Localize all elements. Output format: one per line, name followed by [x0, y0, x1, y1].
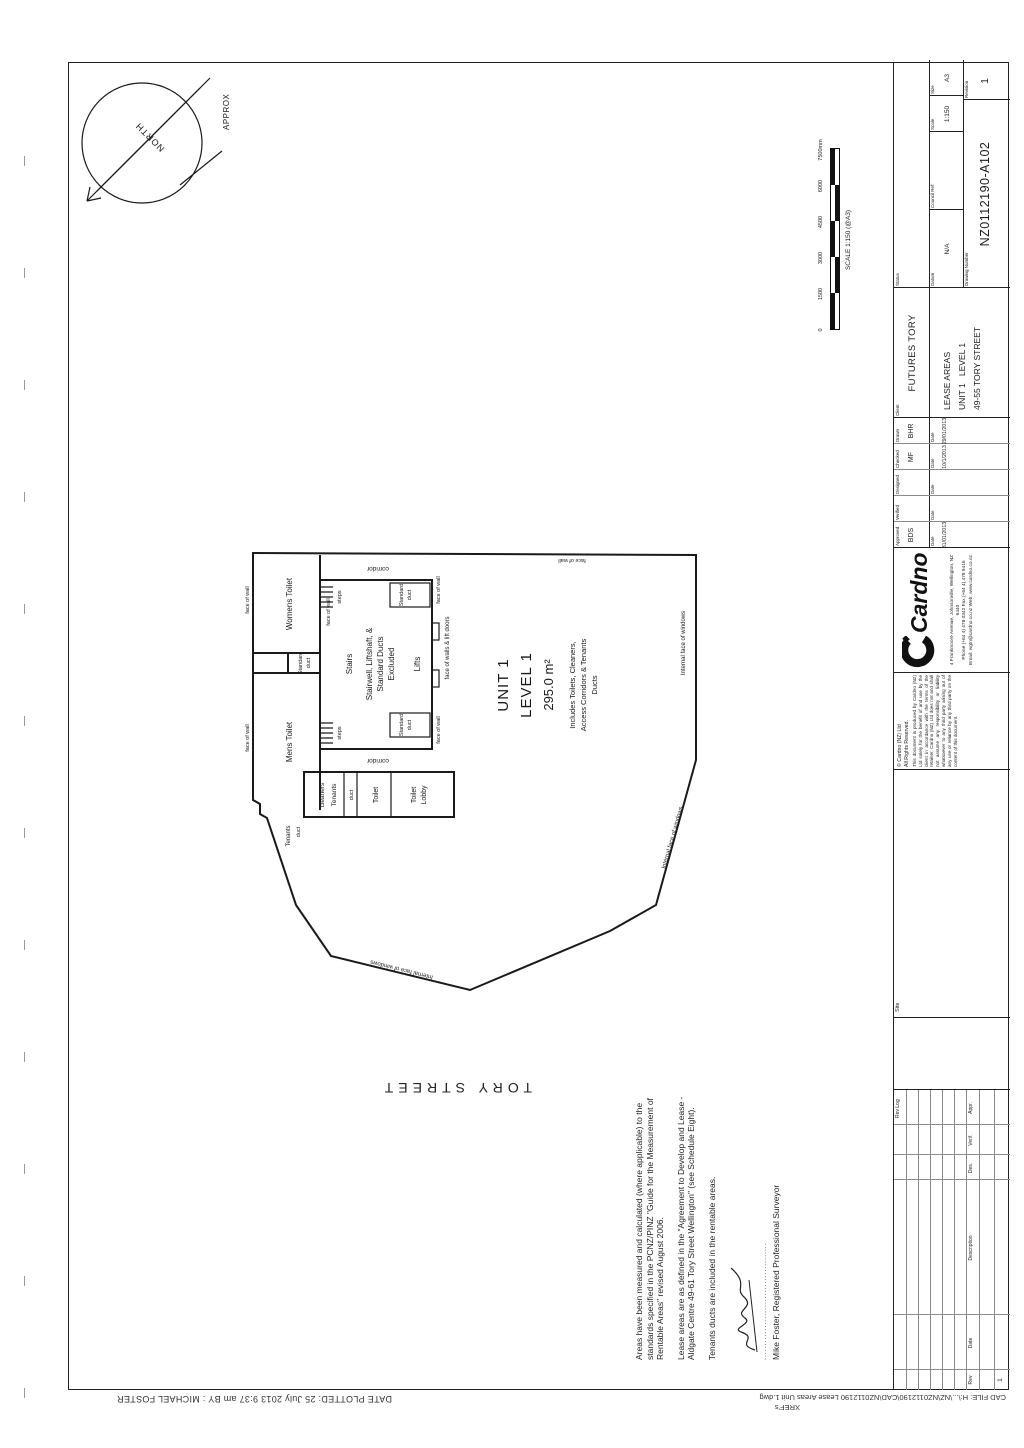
- job-title-line: UNIT 1 LEVEL 1: [957, 343, 967, 410]
- client-value: FUTURES TORY: [907, 288, 918, 418]
- revision-value: 1: [980, 62, 991, 100]
- cardno-address: 4 Frankmoore Avenue, Johnsonville, Welli…: [950, 549, 975, 671]
- title-block: Rev Date Description Des. Verif. Appr. 1…: [893, 62, 1009, 1390]
- client-label: Client: [896, 404, 901, 416]
- face-of-walls-lift-doors-label: face of walls & lift doors: [445, 616, 451, 679]
- svg-text:Lobby: Lobby: [421, 785, 428, 805]
- standard-duct-label: Standard: [298, 652, 304, 674]
- scale-tick: 0: [818, 328, 824, 331]
- lift-door-notch: [432, 623, 439, 640]
- svg-text:duct: duct: [407, 719, 413, 730]
- north-approx-label: APPROX: [222, 94, 231, 130]
- revision-label: Revision: [965, 81, 970, 98]
- date-plotted-stamp: DATE PLOTTED: 25 July 2013 9:37 am BY : …: [117, 1394, 392, 1404]
- stairwell-note: Stairwell, Liftshaft, &: [365, 627, 374, 700]
- xrefs-stamp: XREF's: [775, 1403, 800, 1412]
- north-circle: [82, 83, 202, 203]
- scale-bar-graphic: [830, 148, 840, 330]
- svg-text:Standard Ducts: Standard Ducts: [376, 636, 385, 691]
- personnel-role: Drawn: [896, 429, 901, 442]
- personnel-role: Checked: [896, 450, 901, 468]
- svg-text:duct: duct: [296, 826, 302, 837]
- scale-label: Scale: [931, 119, 936, 130]
- internal-face-of-windows-label: Internal face of windows: [681, 611, 687, 675]
- size-label: Size: [931, 85, 936, 94]
- scale-tick: 3000: [818, 252, 824, 264]
- unit-level: LEVEL 1: [518, 652, 535, 718]
- site-label: Site: [896, 1003, 902, 1012]
- personnel-name: BHR: [908, 418, 915, 444]
- personnel-role: Approved: [896, 527, 901, 546]
- personnel-date: 31/01/2013: [942, 521, 948, 549]
- personnel-date: 10/1/2013: [942, 443, 948, 471]
- job-title-line: LEASE AREAS: [942, 352, 952, 410]
- svg-text:duct: duct: [306, 657, 312, 668]
- rev-entry-1: 1: [998, 1378, 1005, 1382]
- unit-title: UNIT 1: [495, 658, 512, 711]
- svg-text:Internal face of windows: Internal face of windows: [370, 958, 434, 979]
- rev-table-header-appr: Appr.: [969, 1102, 974, 1114]
- toilet-label: Toilet: [373, 787, 380, 803]
- svg-text:Excluded: Excluded: [387, 648, 396, 681]
- rev-table-header-des: Des.: [969, 1163, 974, 1173]
- svg-text:Ducts: Ducts: [590, 675, 599, 694]
- surveyor-signature: [727, 1264, 761, 1354]
- fold-marks: [24, 58, 25, 1398]
- personnel-role: Designed: [896, 475, 901, 494]
- corridor-label-right: corridor: [366, 565, 389, 572]
- notes-block: Areas have been measured and calculated …: [634, 1088, 782, 1360]
- personnel-name: MF: [908, 444, 915, 470]
- svg-text:Standard: Standard: [399, 584, 405, 606]
- scale-bar: 0 1500 3000 4500 6000 7500mm SCALE 1:150…: [818, 143, 860, 333]
- steps-label: steps: [337, 726, 343, 739]
- corridor-label-left: corridor: [366, 757, 389, 764]
- surveyor-name: Mike Foster, Registered Professional Sur…: [771, 1088, 782, 1360]
- copyright-body: This document is produced by Cardno (NZ)…: [912, 675, 958, 767]
- svg-text:Internal face of windows: Internal face of windows: [661, 806, 685, 870]
- svg-text:Standard: Standard: [399, 714, 405, 736]
- cardno-logo-icon: [902, 636, 938, 668]
- north-arrow: NORTH: [62, 63, 247, 213]
- note-tenants-ducts: Tenants ducts are included in the rentab…: [707, 1088, 718, 1360]
- svg-text:face of wall: face of wall: [558, 557, 586, 563]
- datum-label: Datum: [931, 273, 936, 286]
- signature-dots: ........................................: [761, 1088, 769, 1360]
- svg-text:duct: duct: [407, 589, 413, 600]
- unit-includes: Includes Toilets, Cleaners,: [568, 641, 577, 728]
- drawing-number-value: NZ0112190-A102: [978, 100, 992, 288]
- svg-text:face of wall: face of wall: [245, 586, 251, 614]
- unit-area: 295.0 m²: [541, 659, 556, 711]
- rev-table-header-verif: Verif.: [969, 1134, 974, 1145]
- council-ref-label: Council Ref:: [931, 183, 936, 208]
- street-label: TORY STREET: [380, 1080, 532, 1096]
- cardno-wordmark: Cardno: [906, 553, 933, 634]
- datum-value: N/A: [944, 210, 951, 288]
- size-value: A3: [944, 60, 951, 96]
- svg-text:face of wall: face of wall: [436, 576, 442, 604]
- personnel-role: Verified: [896, 505, 901, 520]
- rev-table-header-date: Date: [969, 1338, 974, 1349]
- stairs-label: Stairs: [345, 654, 354, 674]
- drawing-sheet: DATE PLOTTED: 25 July 2013 9:37 am BY : …: [0, 0, 1024, 1448]
- floor-plan: Mens Toilet Womens Toilet Standard duct …: [240, 538, 712, 1020]
- scale-value: 1:150: [944, 96, 951, 132]
- scale-tick: 6000: [818, 180, 824, 192]
- mens-toilet-label: Mens Toilet: [285, 721, 294, 762]
- svg-text:Tenants: Tenants: [331, 783, 338, 807]
- scale-tick: 7500mm: [818, 139, 824, 160]
- svg-text:face of wall: face of wall: [436, 716, 442, 744]
- womens-toilet-label: Womens Toilet: [285, 577, 294, 630]
- cleaners-label: cleaners: [319, 782, 326, 807]
- scale-tick: 1500: [818, 288, 824, 300]
- toilet-lobby-label: Toilet: [411, 787, 418, 803]
- scale-caption: SCALE 1:150 (@A3): [845, 210, 852, 270]
- copyright-block: © Cardno (NZ) Ltd All Rights Reserved. T…: [897, 675, 958, 767]
- steps-left: [320, 723, 333, 743]
- svg-text:duct: duct: [349, 789, 355, 800]
- personnel-name: BDS: [908, 522, 915, 548]
- personnel-date: 29/01/2013: [942, 417, 948, 445]
- svg-text:face of wall: face of wall: [326, 598, 332, 626]
- lift-door-notch: [432, 670, 439, 687]
- rev-log-label: Rev Log: [896, 1099, 901, 1118]
- tenants-duct-label: Tenants: [286, 825, 292, 846]
- drawing-number-label: Drawing Number: [965, 252, 970, 286]
- cad-file-stamp: CAD FILE: H:\...\NZ\NZ0112190\CAD\NZ0112…: [759, 1393, 1006, 1402]
- face-of-wall-label: face of wall: [245, 724, 251, 752]
- scale-tick: 4500: [818, 216, 824, 228]
- lifts-label: Lifts: [413, 657, 422, 672]
- note-measurement: Areas have been measured and calculated …: [634, 1088, 666, 1360]
- svg-text:Access Corridors & Tenants: Access Corridors & Tenants: [579, 639, 588, 732]
- svg-text:steps: steps: [337, 590, 343, 603]
- rev-table-header-rev: Rev: [969, 1376, 974, 1385]
- note-lease-definition: Lease areas are as defined in the "Agree…: [676, 1088, 697, 1360]
- job-title-line: 49-55 TORY STREET: [972, 327, 982, 410]
- rev-table-header-description: Description: [969, 1235, 974, 1260]
- status-label: Status: [896, 273, 901, 286]
- north-label: NORTH: [133, 121, 166, 154]
- scanned-drawing-page: DATE PLOTTED: 25 July 2013 9:37 am BY : …: [0, 0, 1024, 1448]
